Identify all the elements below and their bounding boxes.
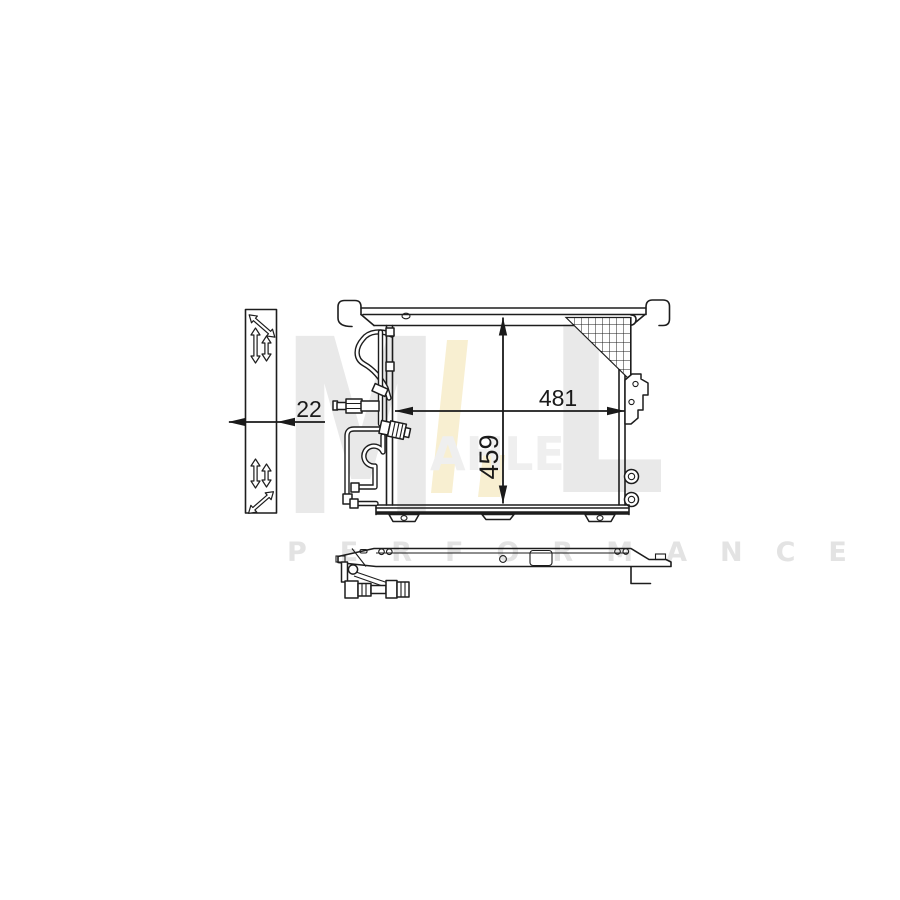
dimension-width-label: 481: [539, 385, 577, 411]
product-image-canvas: M AHLE L PERFORMANCE 22: [0, 0, 900, 900]
condenser-technical-drawing: M AHLE L PERFORMANCE 22: [0, 0, 900, 900]
flow-direction-arrow-diagonal-top: [246, 311, 278, 340]
flow-direction-arrow-vertical: [251, 328, 260, 363]
side-view-panel: [246, 310, 277, 514]
pipe-bracket-clip: [386, 362, 394, 371]
pipe-bracket-clip: [386, 328, 394, 336]
flow-direction-arrow-vertical: [262, 336, 271, 361]
dimension-depth-label: 22: [296, 396, 322, 422]
pipe-end-cap: [351, 483, 359, 492]
flow-direction-arrow-vertical: [262, 464, 271, 487]
flow-direction-arrow-vertical: [251, 459, 260, 488]
center-tab: [482, 515, 514, 520]
bottom-tank: [376, 505, 629, 522]
bracket-flange-line: [631, 567, 651, 584]
pipe-end-cap: [350, 499, 358, 508]
dimension-arrowhead-icon: [499, 318, 507, 336]
dimension-arrowhead-icon: [228, 418, 246, 426]
dimension-height-label: 459: [474, 434, 504, 479]
side-profile-view: [246, 310, 278, 517]
